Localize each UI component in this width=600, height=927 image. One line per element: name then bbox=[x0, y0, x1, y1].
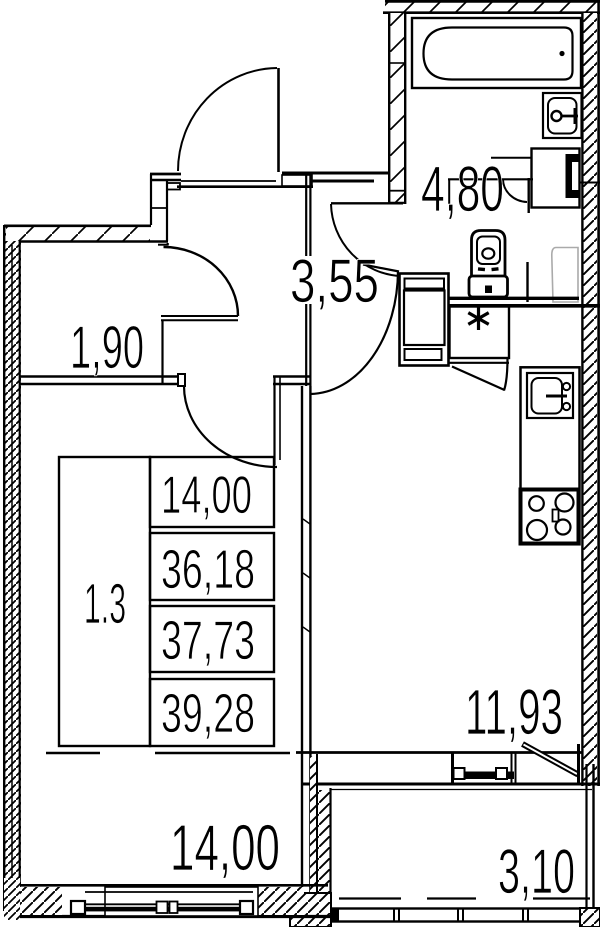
svg-text:36,18: 36,18 bbox=[161, 538, 255, 600]
svg-text:39,28: 39,28 bbox=[161, 682, 255, 744]
svg-text:14,00: 14,00 bbox=[170, 811, 280, 884]
svg-text:1.3: 1.3 bbox=[84, 572, 126, 636]
svg-text:14,00: 14,00 bbox=[161, 466, 252, 525]
svg-text:37,73: 37,73 bbox=[161, 609, 255, 671]
svg-text:3,10: 3,10 bbox=[498, 837, 575, 907]
svg-text:11,93: 11,93 bbox=[465, 676, 563, 748]
svg-text:1,90: 1,90 bbox=[70, 314, 144, 381]
svg-text:3,55: 3,55 bbox=[290, 247, 379, 315]
svg-text:4,80: 4,80 bbox=[421, 153, 504, 225]
